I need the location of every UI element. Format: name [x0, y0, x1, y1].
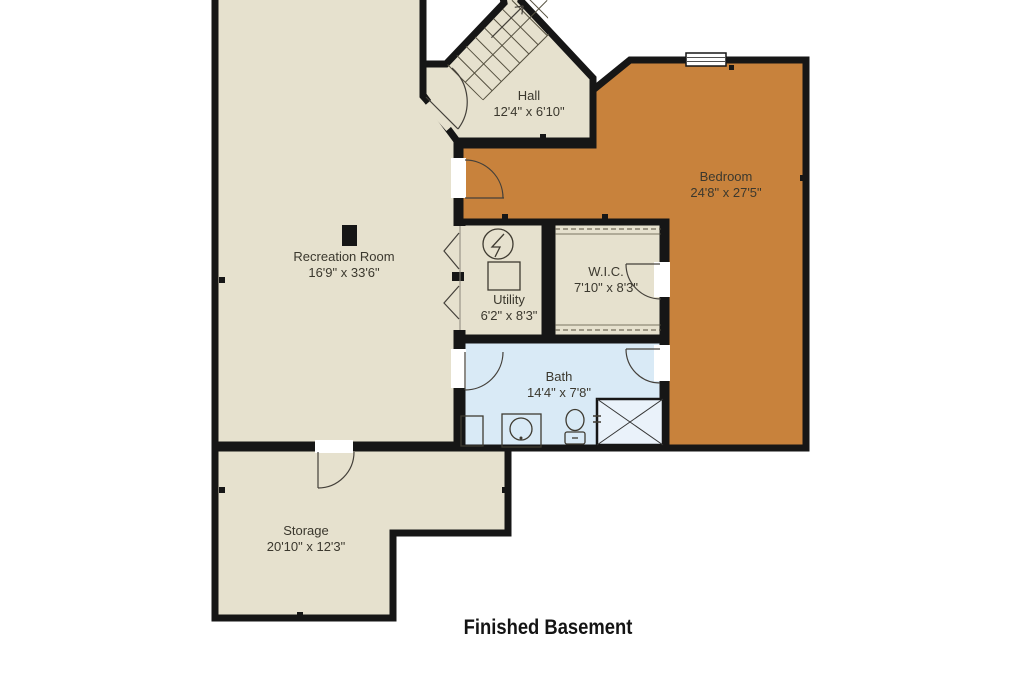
- room-label-storage: Storage 20'10" x 12'3": [267, 523, 346, 555]
- storage-area: [215, 448, 508, 618]
- room-dims: 16'9" x 33'6": [293, 265, 394, 281]
- room-label-bedroom: Bedroom 24'8" x 27'5": [690, 169, 761, 201]
- support-column: [342, 225, 357, 246]
- bedroom-doorway-gap: [451, 158, 466, 198]
- room-dims: 7'10" x 8'3": [574, 280, 638, 296]
- room-label-hall: Hall 12'4" x 6'10": [493, 88, 564, 120]
- room-name: Recreation Room: [293, 249, 394, 265]
- bedroom-window: [686, 53, 726, 66]
- bath-right-doorway-gap: [654, 345, 670, 381]
- room-label-recreation: Recreation Room 16'9" x 33'6": [293, 249, 394, 281]
- room-name: Bath: [527, 369, 591, 385]
- room-name: W.I.C.: [574, 264, 638, 280]
- room-label-utility: Utility 6'2" x 8'3": [481, 292, 538, 324]
- room-dims: 12'4" x 6'10": [493, 104, 564, 120]
- plan-title: Finished Basement: [464, 616, 633, 641]
- shower-icon: [593, 399, 663, 445]
- floorplan: Hall 12'4" x 6'10" Bedroom 24'8" x 27'5"…: [0, 0, 1024, 681]
- storage-doorway-gap: [315, 440, 353, 453]
- room-name: Hall: [493, 88, 564, 104]
- room-dims: 24'8" x 27'5": [690, 185, 761, 201]
- bath-left-doorway-gap: [451, 349, 466, 388]
- room-dims: 6'2" x 8'3": [481, 308, 538, 324]
- wic-doorway-gap: [654, 262, 670, 297]
- room-label-bath: Bath 14'4" x 7'8": [527, 369, 591, 401]
- room-name: Bedroom: [690, 169, 761, 185]
- room-dims: 14'4" x 7'8": [527, 385, 591, 401]
- room-name: Utility: [481, 292, 538, 308]
- room-label-wic: W.I.C. 7'10" x 8'3": [574, 264, 638, 296]
- room-dims: 20'10" x 12'3": [267, 539, 346, 555]
- bifold-center-post: [452, 272, 464, 281]
- room-name: Storage: [267, 523, 346, 539]
